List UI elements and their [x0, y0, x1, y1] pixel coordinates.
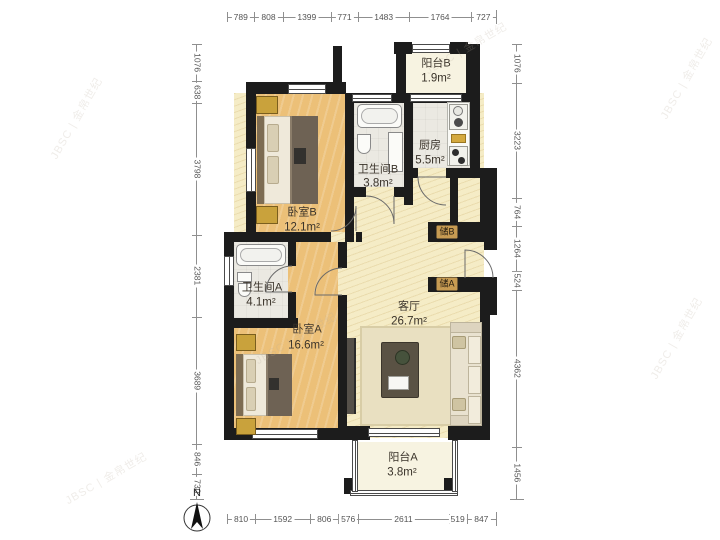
room-label-bed-b: 卧室B [287, 208, 316, 219]
wall-segment [394, 187, 413, 197]
window [350, 490, 458, 496]
dimension-value: 764 [513, 203, 522, 221]
dimension-value: 524 [513, 272, 522, 290]
window [252, 429, 318, 439]
watermark: JBSC | 金帛世纪 [656, 34, 716, 122]
wall-segment [224, 318, 298, 328]
bathtub-inner [361, 108, 398, 124]
burner [452, 149, 459, 156]
dimension-segment: 847 [467, 512, 497, 526]
sofa-cushion [468, 366, 481, 394]
toilet [237, 272, 252, 282]
dimension-value: 2381 [193, 264, 202, 287]
dimension-segment: 1076 [190, 44, 204, 81]
dimension-value: 771 [335, 13, 353, 22]
wall-segment [450, 178, 458, 222]
room-label-balcony-b: 阳台B [421, 59, 450, 70]
nightstand [256, 96, 278, 114]
dimension-segment: 519 [449, 512, 467, 526]
dimension-segment: 806 [310, 512, 338, 526]
sink-basin [453, 106, 463, 116]
watermark: JBSC | 金帛世纪 [62, 448, 150, 508]
room-label-balcony-a: 阳台A [388, 453, 417, 464]
dimension-segment: 1592 [255, 512, 310, 526]
bed-b-pillow [267, 124, 279, 152]
room-label-bed-a: 卧室A [292, 325, 321, 336]
toilet [357, 134, 371, 154]
wall-segment [470, 93, 480, 178]
nightstand [256, 206, 278, 224]
dimension-segment: 810 [227, 512, 255, 526]
window [288, 84, 326, 94]
dimension-segment: 846 [190, 444, 204, 473]
dimension-value: 847 [472, 515, 490, 524]
dimension-value: 1076 [193, 51, 202, 74]
sofa-cushion [468, 396, 481, 424]
dimension-value: 3689 [193, 369, 202, 392]
room-area-balcony-b: 1.9m² [421, 73, 450, 85]
room-label-living: 客厅 [398, 302, 420, 313]
floorplan-canvas: 阳台B 1.9m² 厨房 5.5m² 卫生间B 3.8m² 卧室B 12.1m²… [0, 0, 720, 540]
dimension-value: 806 [315, 515, 333, 524]
window [224, 256, 234, 286]
throw-pillow [452, 398, 466, 411]
bed-a-pillow [246, 387, 256, 411]
room-label-bath-b: 卫生间B [358, 165, 398, 176]
sofa-arm [450, 322, 482, 333]
dimension-segment: 638 [190, 81, 204, 103]
dimension-segment: 576 [338, 512, 358, 526]
bed-b-tray [294, 148, 306, 164]
wall-segment [338, 295, 347, 428]
window [352, 94, 392, 102]
wall-segment [338, 242, 347, 268]
bed-b-headboard [257, 116, 264, 204]
dimension-segment: 1399 [283, 10, 332, 24]
bed-a-pillow [246, 359, 256, 383]
window [352, 440, 358, 492]
room-label-bath-a: 卫生间A [242, 283, 282, 294]
wall-segment [466, 44, 480, 96]
dimension-value: 789 [232, 13, 250, 22]
window [368, 428, 440, 437]
wall-segment [356, 232, 362, 242]
dimensions-bottom: 81015928065762611519847 [227, 512, 497, 526]
dimension-value: 808 [259, 13, 277, 22]
dimension-value: 1399 [295, 13, 318, 22]
room-label-kitchen: 厨房 [419, 141, 441, 152]
room-area-kitchen: 5.5m² [415, 155, 444, 167]
room-area-balcony-a: 3.8m² [387, 467, 416, 479]
nightstand [236, 418, 256, 435]
burner [458, 157, 465, 164]
watermark: JBSC | 金帛世纪 [646, 294, 706, 382]
plant [395, 350, 410, 365]
dimension-value: 576 [339, 515, 357, 524]
watermark: JBSC | 金帛世纪 [46, 74, 106, 162]
dimension-segment: 808 [254, 10, 282, 24]
window [412, 44, 450, 53]
throw-pillow [452, 336, 466, 349]
dimension-value: 1456 [513, 461, 522, 484]
bed-b-pillow [267, 156, 279, 184]
compass-icon [179, 500, 215, 534]
dimension-value: 2611 [392, 515, 414, 524]
wall-segment [448, 426, 490, 440]
wall-segment [338, 426, 370, 440]
room-area-bed-a: 16.6m² [288, 340, 324, 352]
window [246, 148, 256, 192]
dimensions-right: 10763223764126452443621456 [510, 44, 524, 500]
dimension-segment: 764 [510, 198, 524, 225]
sink-basin [454, 118, 463, 127]
wall-segment [450, 42, 468, 54]
dimension-segment: 524 [510, 271, 524, 290]
room-area-bed-b: 12.1m² [284, 222, 320, 234]
wall-segment [333, 46, 342, 86]
dimension-value: 727 [474, 13, 492, 22]
dimension-segment: 1264 [510, 226, 524, 271]
dimension-value: 1592 [271, 515, 294, 524]
dimension-value: 810 [232, 515, 250, 524]
dimensions-top: 789808139977114831764727 [227, 10, 497, 24]
dimension-value: 1264 [513, 237, 522, 260]
dimension-segment: 2381 [190, 235, 204, 317]
room-area-living: 26.7m² [391, 316, 427, 328]
dimension-segment: 1483 [358, 10, 410, 24]
wall-segment [288, 242, 296, 266]
compass-north-label: N [178, 488, 216, 499]
dimension-segment: 789 [227, 10, 254, 24]
dimension-value: 519 [449, 515, 467, 524]
dimension-value: 1483 [372, 13, 395, 22]
window [452, 440, 458, 492]
room-area-bath-a: 4.1m² [246, 297, 275, 309]
dimension-segment: 3689 [190, 317, 204, 445]
window [410, 94, 462, 102]
dimension-segment: 1076 [510, 44, 524, 83]
cutting-board [451, 134, 466, 143]
nightstand [236, 334, 256, 351]
bed-a-headboard [236, 354, 243, 416]
sofa-cushion [468, 336, 481, 364]
bathtub-inner [240, 248, 282, 262]
wall-segment [345, 93, 354, 242]
dimension-segment: 3223 [510, 83, 524, 199]
dimension-value: 638 [193, 83, 202, 101]
dimension-value: 846 [193, 450, 202, 468]
dimension-value: 1076 [513, 52, 522, 75]
dimensions-left: 1076638379823813689846730 [190, 44, 204, 500]
storage-b-label: 储B [436, 226, 457, 239]
tray [388, 376, 409, 390]
wall-segment [484, 242, 497, 250]
room-area-bath-b: 3.8m² [363, 178, 392, 190]
dimension-value: 3798 [193, 157, 202, 180]
dimension-value: 4362 [513, 357, 522, 380]
wall-segment [413, 168, 418, 178]
dimension-segment: 3798 [190, 103, 204, 234]
dimension-segment: 727 [471, 10, 497, 24]
dimension-segment: 771 [331, 10, 358, 24]
tv-cabinet [347, 338, 356, 414]
dimension-segment: 1764 [409, 10, 470, 24]
dimension-value: 1764 [429, 13, 452, 22]
dimension-value: 3223 [513, 129, 522, 152]
dimension-segment: 1456 [510, 447, 524, 500]
bed-a-tray [269, 378, 279, 390]
dimension-segment: 4362 [510, 290, 524, 447]
storage-a-label: 储A [436, 278, 457, 291]
compass: N [178, 488, 216, 539]
dimension-segment: 2611 [358, 512, 449, 526]
wall-segment [394, 42, 412, 54]
